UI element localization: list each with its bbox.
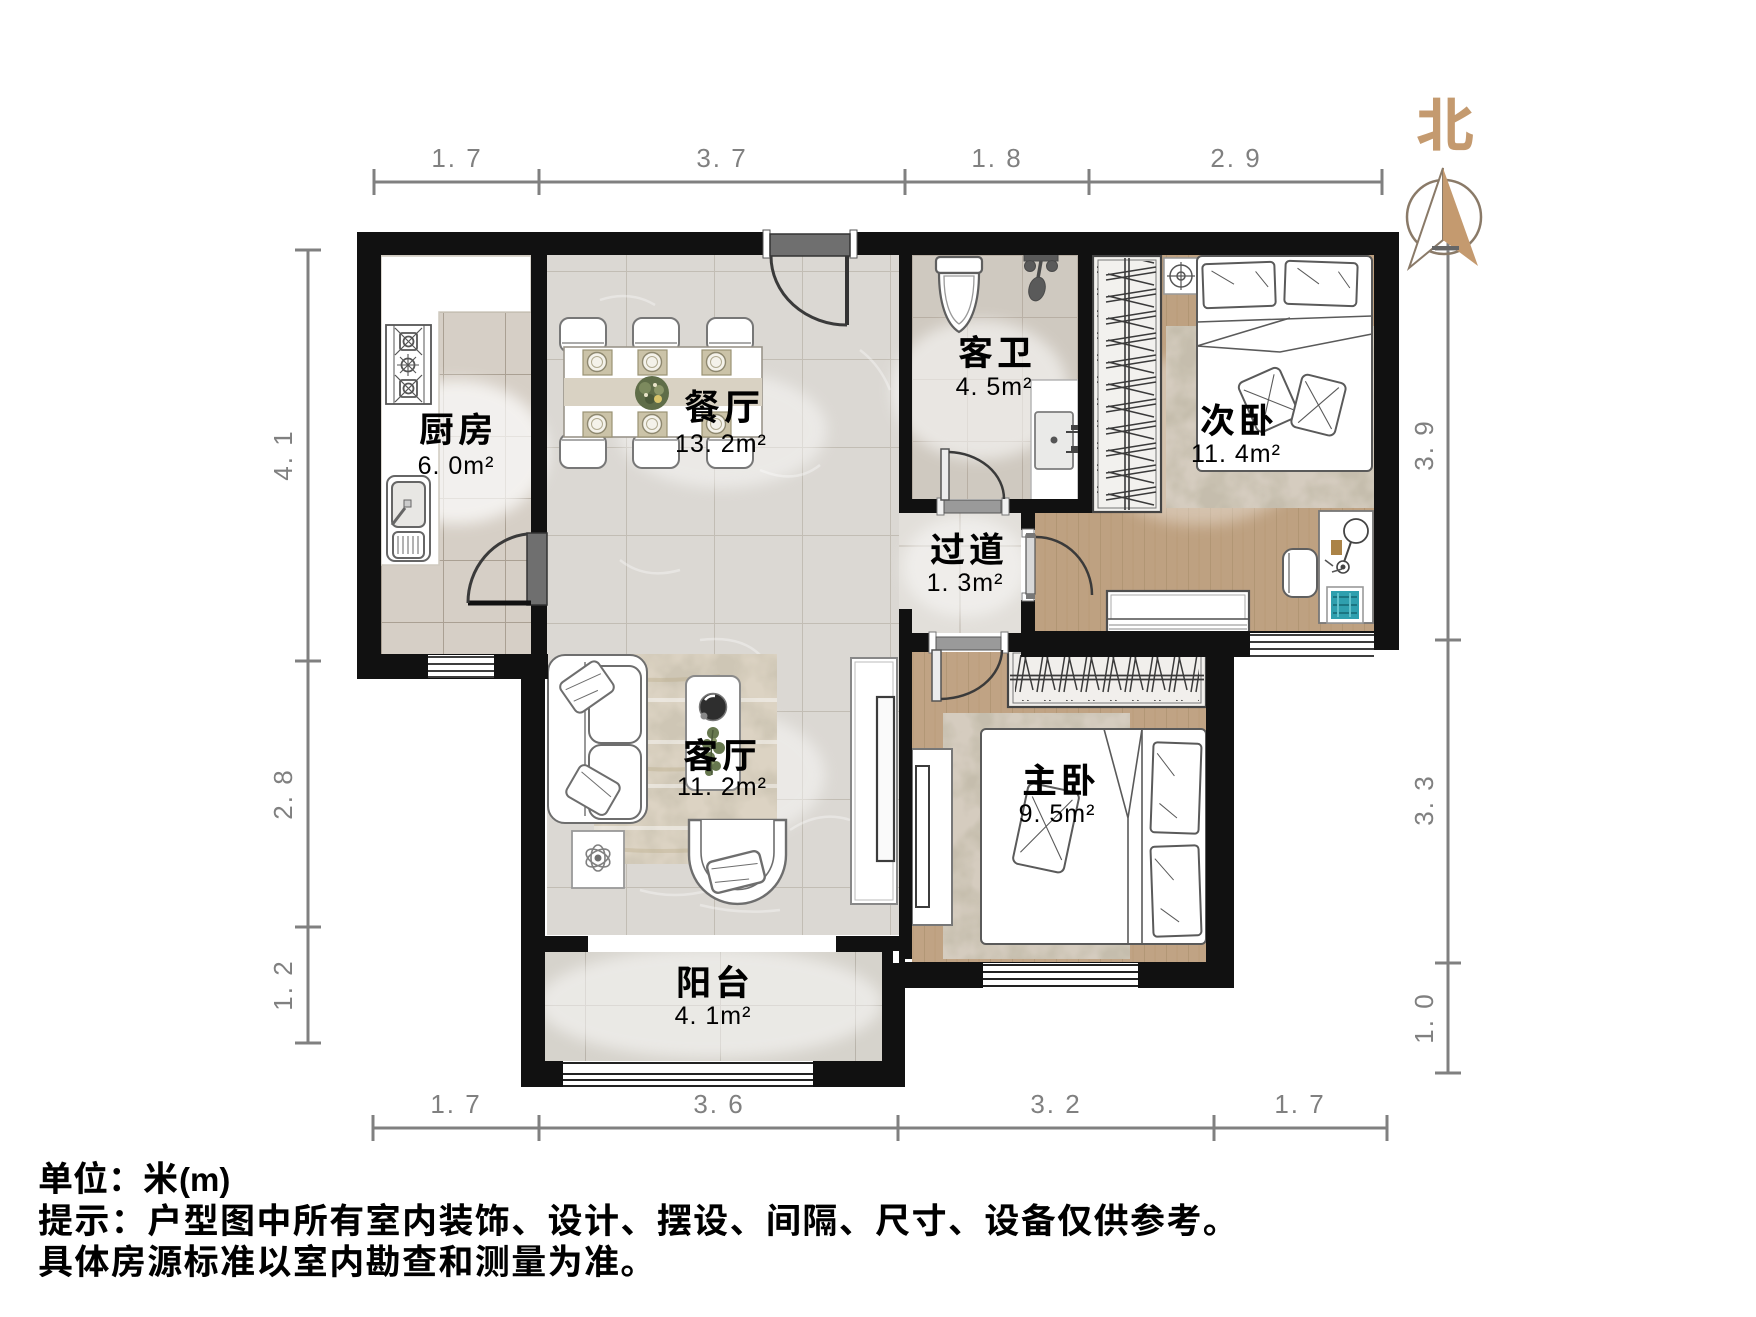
svg-text:9. 5m²: 9. 5m² [1019,800,1096,828]
svg-text:11. 4m²: 11. 4m² [1191,440,1281,468]
svg-text:2. 9: 2. 9 [1210,143,1261,173]
svg-text:1. 7: 1. 7 [1274,1089,1325,1119]
svg-text:6. 0m²: 6. 0m² [418,452,495,480]
svg-text:1. 0: 1. 0 [1409,992,1439,1043]
svg-text:2. 8: 2. 8 [268,768,298,819]
svg-text:3. 6: 3. 6 [693,1089,744,1119]
svg-text:1. 7: 1. 7 [431,143,482,173]
svg-text:4. 5m²: 4. 5m² [956,373,1033,401]
svg-text:3. 7: 3. 7 [696,143,747,173]
svg-text:3. 2: 3. 2 [1030,1089,1081,1119]
svg-text:13. 2m²: 13. 2m² [675,430,767,458]
svg-text:1. 3m²: 1. 3m² [927,569,1004,597]
svg-text:(m): (m) [179,1161,230,1198]
svg-text:1. 2: 1. 2 [268,959,298,1010]
svg-text:3. 3: 3. 3 [1409,774,1439,825]
svg-text:4. 1: 4. 1 [268,429,298,480]
svg-text:1. 8: 1. 8 [971,143,1022,173]
svg-text:3. 9: 3. 9 [1409,419,1439,470]
svg-text:11. 2m²: 11. 2m² [677,773,767,801]
svg-text:4. 1m²: 4. 1m² [675,1002,752,1030]
svg-text:1. 7: 1. 7 [430,1089,481,1119]
